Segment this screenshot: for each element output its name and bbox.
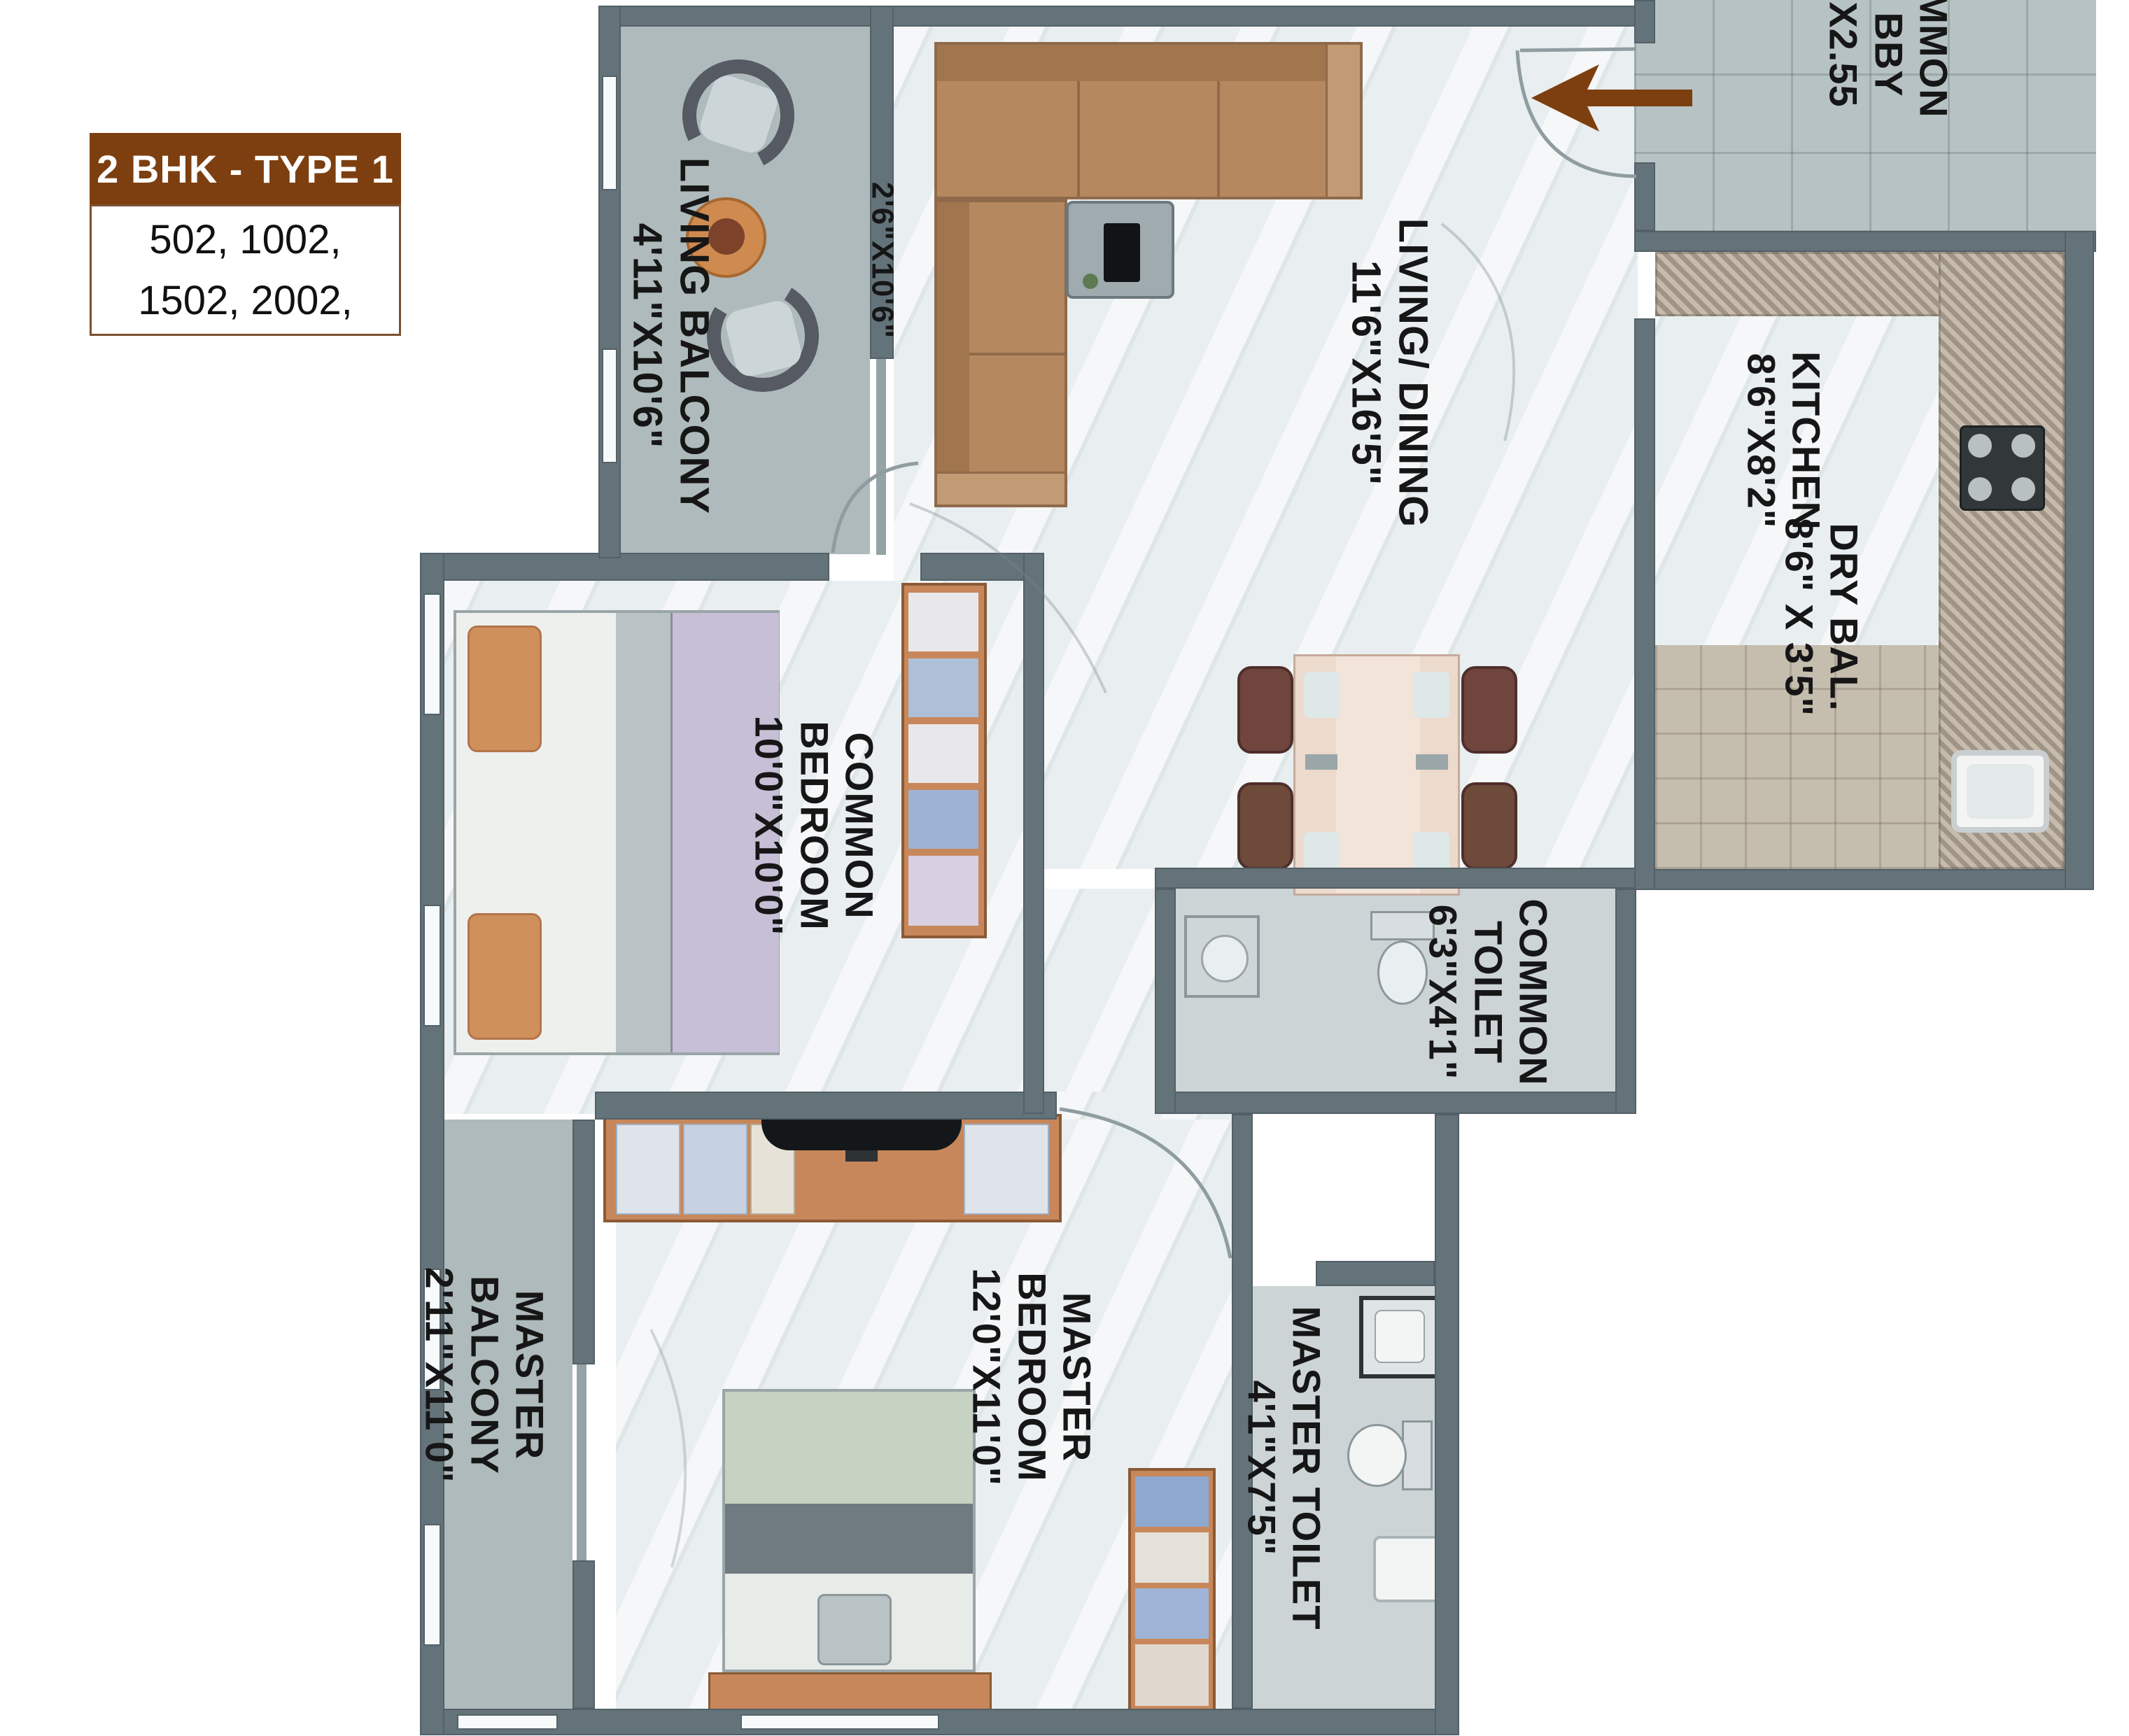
toilet-wc-bowl [1347, 1424, 1407, 1487]
plan-type-title: 2 BHK - TYPE 1 [90, 133, 401, 204]
window [458, 1716, 556, 1728]
entrance-arrow-icon [1526, 59, 1701, 136]
wall-entry-bottom [1634, 162, 1655, 231]
dining-chair [1237, 782, 1293, 870]
bed-blanket [670, 613, 779, 1052]
bed-sheet-band [616, 613, 670, 1052]
wall-bed1-top-left [420, 553, 829, 581]
wall-mastertoilet-top [1316, 1261, 1435, 1286]
tv-stand [845, 1150, 878, 1162]
bed-duvet [725, 1392, 973, 1506]
wardrobe-panel [908, 724, 978, 783]
toilet-wc [1370, 911, 1435, 940]
washbasin [1184, 915, 1260, 998]
common-wardrobe [901, 583, 987, 938]
dining-table [1293, 654, 1460, 896]
floor-plan: LIVING BALCONY 4'11"X10'6" 2'6"X10'6" LI… [0, 0, 2129, 1736]
master-dresser [603, 1114, 1062, 1222]
wall-balcony-divider [870, 6, 894, 359]
master-bed-headboard [708, 1672, 992, 1711]
stove [1960, 425, 2045, 511]
shower-tray [1373, 1536, 1442, 1602]
dresser-drawer [616, 1124, 680, 1215]
sofa-seam [969, 353, 1064, 355]
wall-toilet1-left [1155, 889, 1176, 1114]
wall-entry-top [1634, 0, 1655, 43]
master-balcony-floor [444, 1120, 572, 1709]
bed-pillow [468, 626, 542, 752]
duct-void [1253, 1114, 1435, 1261]
chair-cushion [696, 72, 781, 157]
window [603, 77, 616, 189]
table-center [708, 218, 745, 255]
plant-icon [1083, 274, 1098, 289]
wall-toilet1-top [1155, 868, 1638, 889]
place-setting [1416, 754, 1448, 770]
master-bed [722, 1389, 976, 1672]
window [425, 595, 440, 714]
window [425, 1525, 440, 1644]
basin-bowl [1201, 935, 1249, 982]
masterbalcony-slider-sill [577, 1364, 586, 1560]
burner-icon [1968, 434, 1992, 458]
wall-lobby-bottom [1634, 231, 2096, 252]
balcony-slider-sill [876, 359, 886, 555]
wardrobe-panel [908, 658, 978, 717]
toilet-wc-bowl [1377, 940, 1428, 1005]
sofa-seam [1077, 81, 1080, 199]
wall-drybal-bottom [1634, 869, 2094, 890]
dresser-drawer [683, 1124, 747, 1215]
dining-chair [1237, 666, 1293, 754]
sofa-armrest [1326, 45, 1360, 197]
wall-top [598, 6, 1638, 27]
place-setting [1304, 672, 1340, 718]
lobby-floor [1634, 0, 2096, 232]
sofa-seam [1217, 81, 1220, 199]
dining-chair [1461, 666, 1517, 754]
wardrobe-panel [1135, 1644, 1209, 1706]
sofa-armrest [937, 472, 1064, 504]
wardrobe-panel [908, 593, 978, 651]
chair-cushion [723, 298, 804, 379]
wardrobe-panel [1135, 1532, 1209, 1583]
burner-icon [2011, 477, 2035, 501]
wall-master-right-outer [1435, 1114, 1459, 1735]
table-runner [1336, 656, 1420, 894]
bed-pillow [817, 1594, 892, 1665]
wardrobe-panel [1135, 1476, 1209, 1527]
sofa-back [937, 202, 969, 504]
place-setting [1413, 672, 1449, 718]
burner-icon [2011, 434, 2035, 458]
tv-unit [1066, 201, 1174, 299]
place-setting [1305, 754, 1337, 770]
sink-basin [1967, 764, 2034, 819]
common-bed [454, 610, 780, 1055]
tv-icon [1104, 223, 1140, 282]
wardrobe-panel [1135, 1588, 1209, 1639]
dry-balcony-sink [1951, 750, 2049, 833]
wall-kitchen-left [1634, 318, 1655, 890]
window [742, 1716, 938, 1728]
wall-bottom [420, 1709, 1459, 1735]
burner-icon [1968, 477, 1992, 501]
wardrobe-panel [908, 856, 978, 926]
wall-masterbed-top [595, 1092, 1057, 1120]
balcony-table [686, 197, 766, 278]
wall-toilet1-right [1615, 889, 1636, 1114]
window [603, 350, 616, 462]
basin-bowl [1375, 1310, 1425, 1363]
wall-right-outer [2065, 231, 2094, 890]
sofa-back [937, 45, 1360, 81]
plan-unit-numbers: 502, 1002, 1502, 2002, [90, 204, 401, 336]
tv-icon [761, 1118, 962, 1150]
hallway-floor [1044, 889, 1155, 1120]
window [425, 906, 440, 1025]
sofa-vertical [934, 199, 1067, 507]
dresser-drawer [964, 1124, 1049, 1215]
wardrobe-panel [908, 790, 978, 849]
wall-bed1-right [1023, 553, 1044, 1114]
sofa-horizontal [934, 42, 1363, 199]
bed-blanket-band [725, 1504, 973, 1574]
dining-chair [1461, 782, 1517, 870]
wall-masterbalcony-divider-top [572, 1120, 595, 1364]
wall-bed1-top-right [920, 553, 1025, 581]
bed-pillow [468, 913, 542, 1040]
wall-mastertoilet-left [1232, 1114, 1253, 1709]
master-wardrobe [1128, 1468, 1216, 1712]
wall-masterbalcony-divider-bottom [572, 1560, 595, 1709]
wall-toilet1-bottom [1155, 1092, 1634, 1114]
washbasin [1359, 1296, 1440, 1378]
window [425, 1270, 440, 1389]
